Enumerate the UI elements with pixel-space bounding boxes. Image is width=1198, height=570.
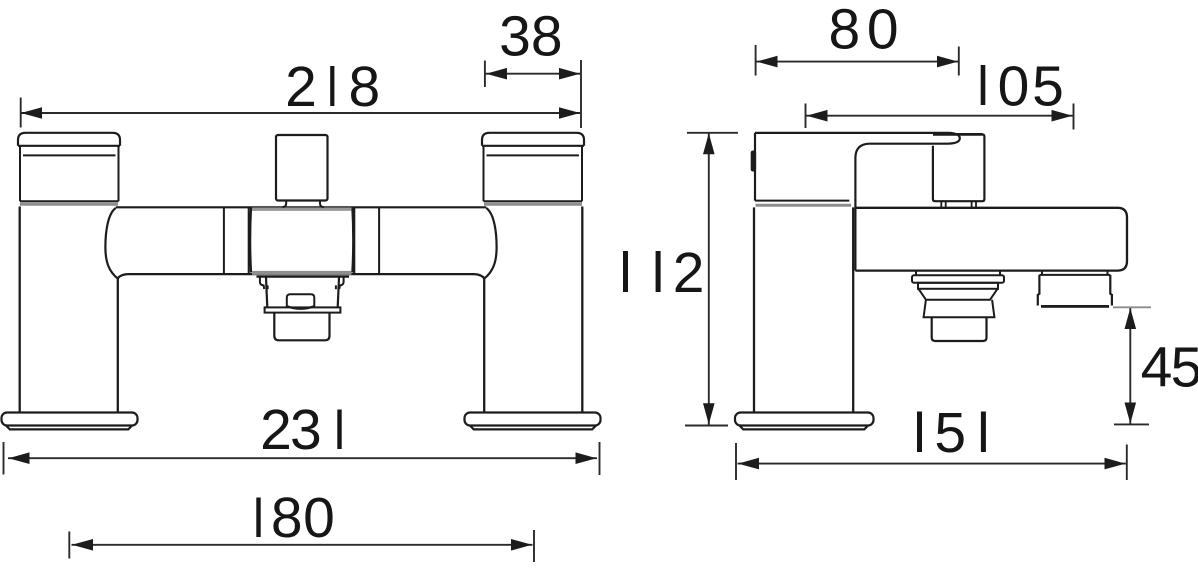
svg-text:2: 2 (260, 398, 292, 462)
svg-text:5: 5 (1032, 54, 1064, 118)
svg-text:2: 2 (673, 241, 705, 305)
svg-text:0: 0 (303, 486, 335, 550)
svg-text:8: 8 (531, 5, 563, 69)
svg-text:8: 8 (348, 55, 380, 119)
svg-text:2: 2 (285, 55, 317, 119)
svg-text:0: 0 (998, 54, 1030, 118)
svg-text:8: 8 (829, 0, 861, 62)
svg-text:4: 4 (1141, 336, 1173, 400)
svg-text:3: 3 (290, 398, 322, 462)
svg-text:5: 5 (934, 401, 966, 465)
svg-text:8: 8 (271, 486, 303, 550)
svg-text:0: 0 (867, 0, 899, 62)
svg-text:3: 3 (499, 5, 531, 69)
svg-text:5: 5 (1171, 336, 1198, 400)
